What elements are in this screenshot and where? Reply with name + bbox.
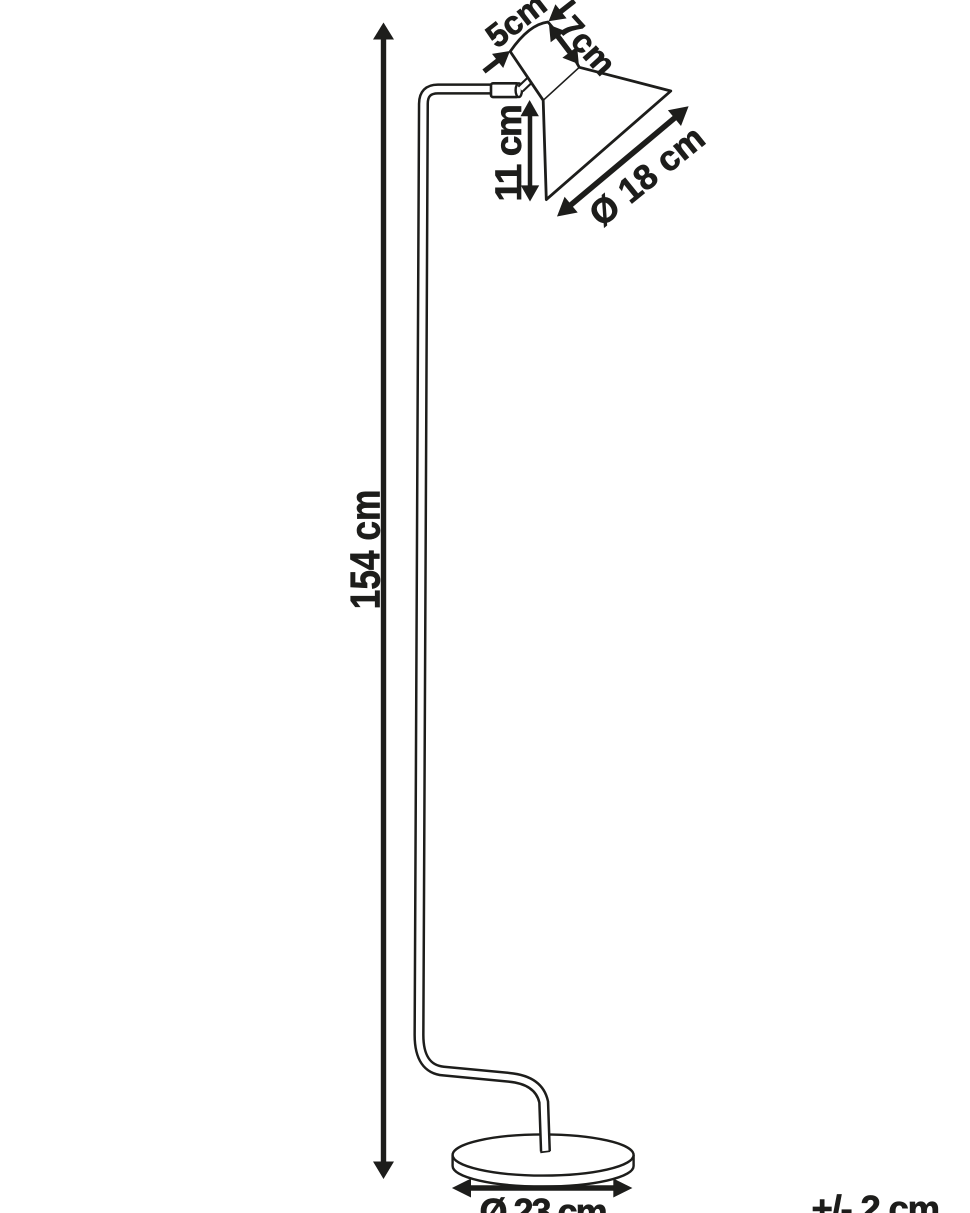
svg-text:+/- 2 cm: +/- 2 cm xyxy=(812,1188,939,1213)
svg-text:11 cm: 11 cm xyxy=(488,106,529,202)
svg-text:Ø 23 cm: Ø 23 cm xyxy=(480,1191,606,1213)
svg-text:154 cm: 154 cm xyxy=(343,490,389,610)
